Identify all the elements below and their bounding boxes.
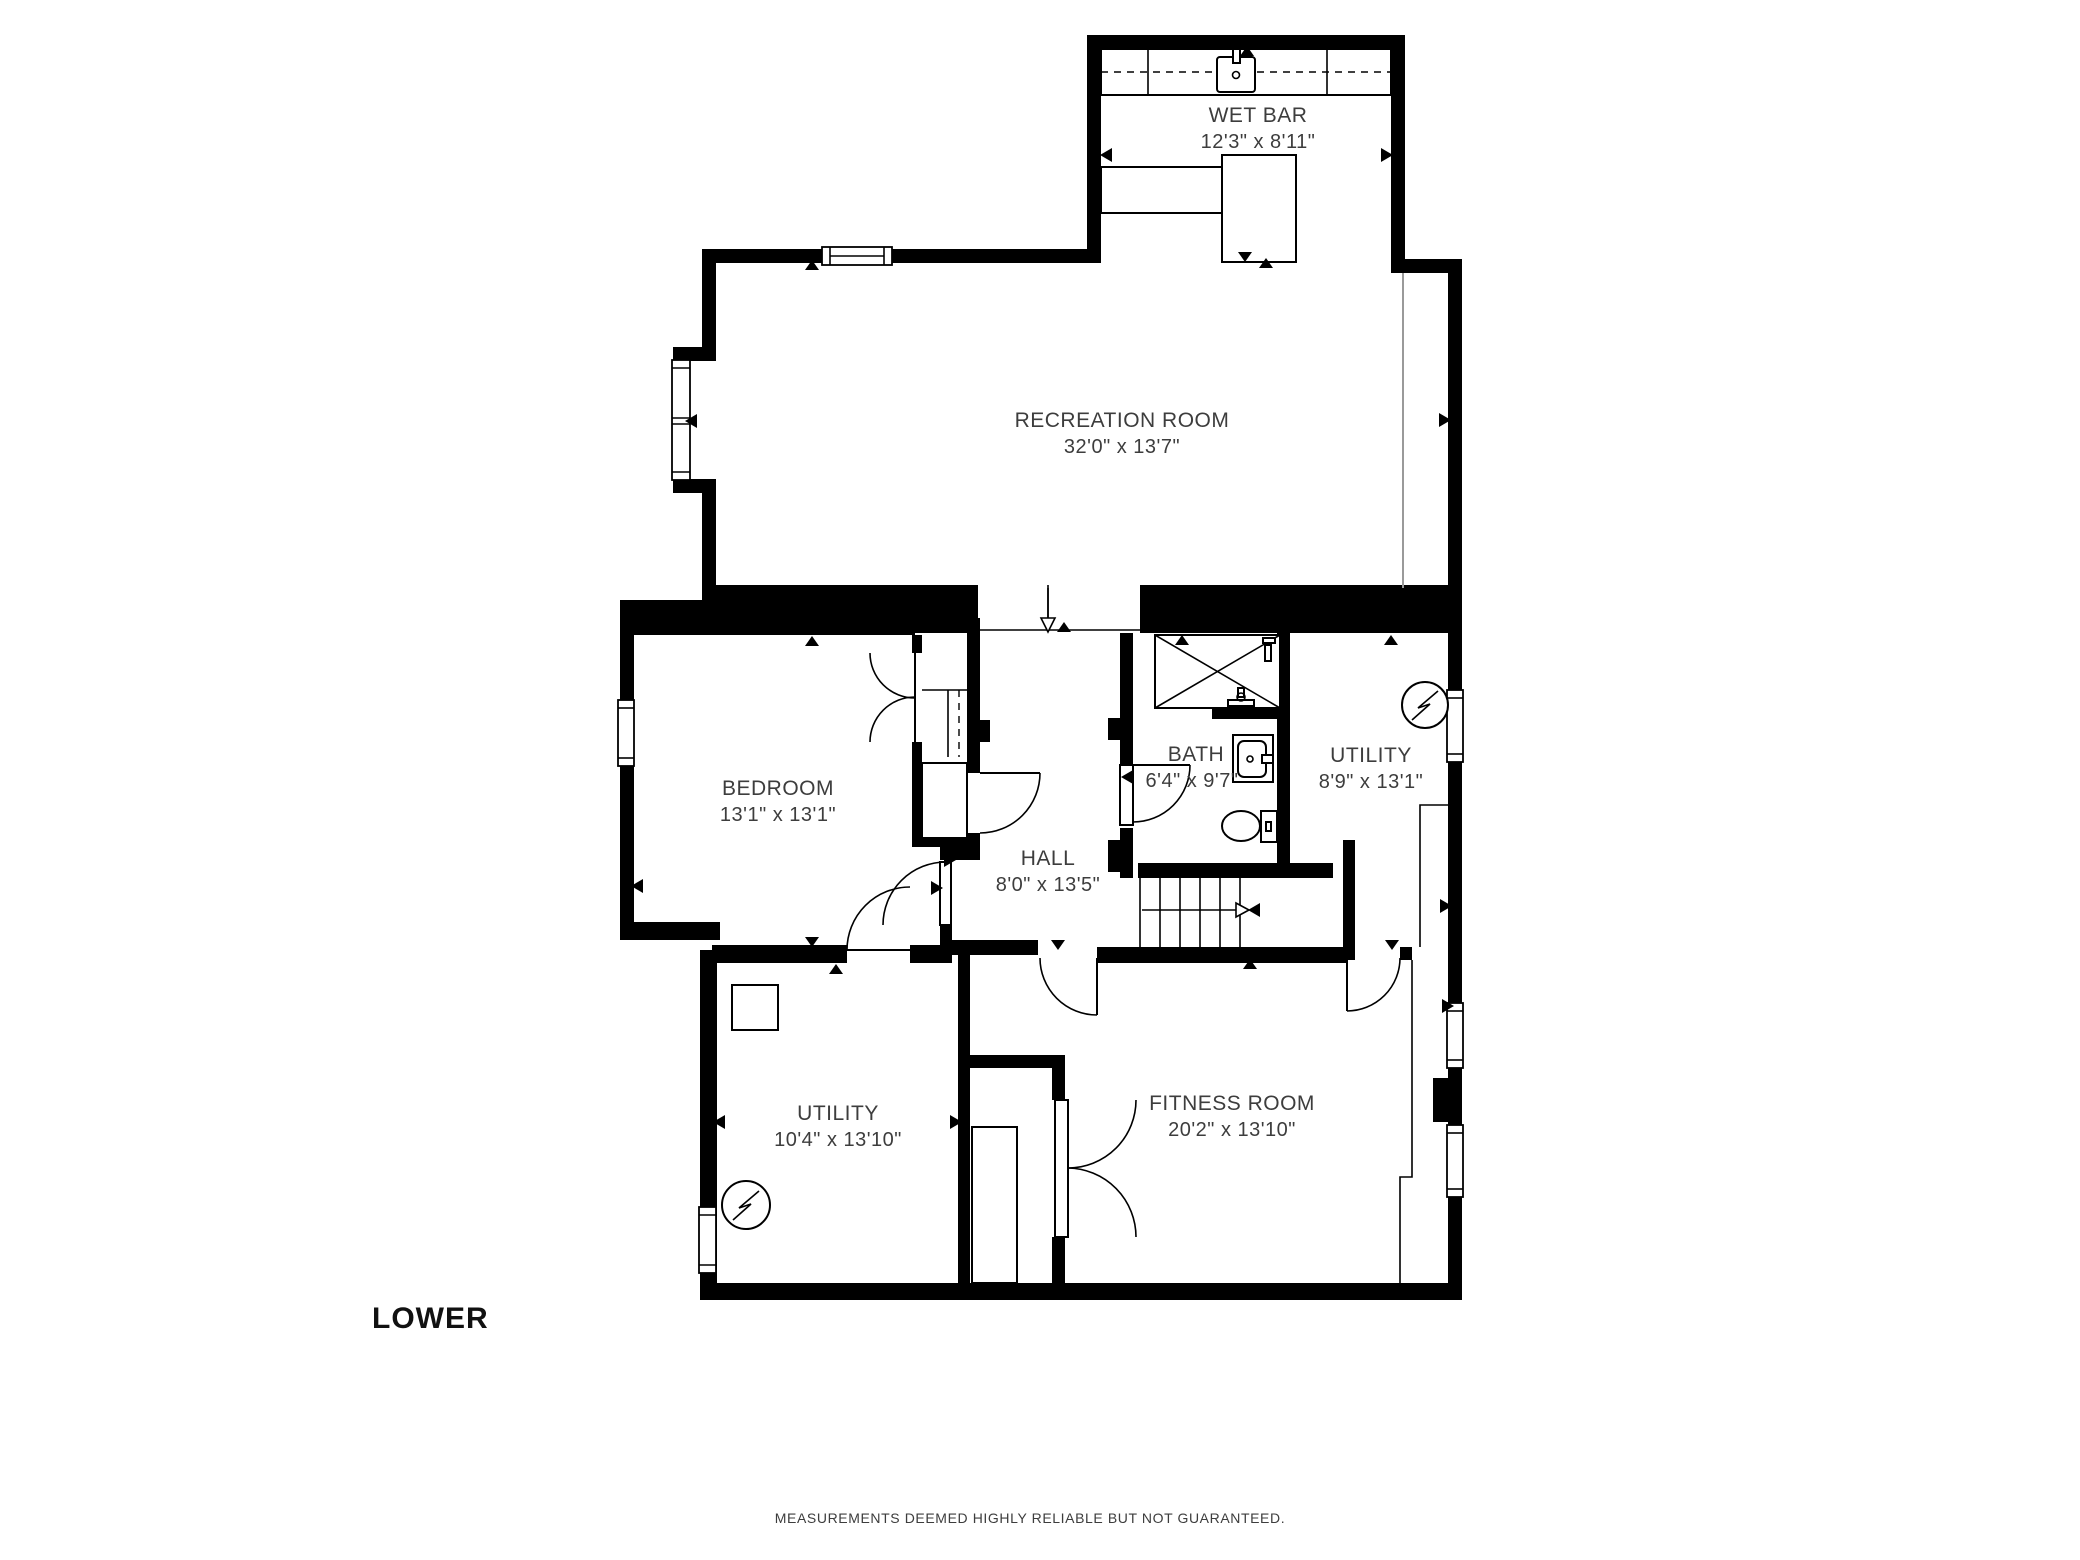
wall-segment: [702, 249, 1101, 263]
shower-icon: [1155, 635, 1280, 708]
wall-segment: [620, 600, 634, 940]
stairs-upper-landing: [978, 585, 1140, 632]
foundation-ledge-line: [1400, 960, 1412, 1283]
room-label-fitness-room: FITNESS ROOM: [1149, 1092, 1315, 1115]
wall-segment: [967, 757, 980, 773]
room-dims-hall: 8'0" x 13'5": [996, 874, 1101, 896]
electrical-panel: [732, 985, 778, 1030]
wall-segment: [1097, 947, 1347, 963]
bedroom-closet: [922, 690, 967, 757]
wall-segment: [1108, 718, 1122, 740]
disclaimer: MEASUREMENTS DEEMED HIGHLY RELIABLE BUT …: [775, 1510, 1285, 1526]
wall-segment: [912, 838, 967, 847]
wall-segment: [1448, 592, 1462, 692]
wall-segment: [1391, 35, 1405, 273]
wall-segment: [912, 635, 922, 653]
wall-segment: [958, 955, 970, 1283]
window: [699, 1207, 716, 1273]
wall-segment: [673, 347, 716, 361]
door-arc: [980, 773, 1040, 833]
door-arc: [1040, 958, 1097, 1015]
wall-segment: [1400, 947, 1412, 960]
stairs: [1140, 872, 1260, 947]
room-dims-wet-bar: 12'3" x 8'11": [1201, 131, 1316, 153]
room-label-utility-lower: UTILITY: [797, 1102, 879, 1125]
furnace: [972, 1127, 1017, 1283]
wall-segment: [1120, 633, 1133, 765]
door-arc: [883, 862, 951, 925]
wall-segment: [970, 1055, 1065, 1068]
wall-segment: [1108, 840, 1122, 872]
wall-segment: [700, 1283, 1462, 1300]
room-label-bath: BATH: [1168, 743, 1224, 766]
wall-segment: [620, 618, 915, 635]
wall-segment: [1448, 1068, 1462, 1127]
room-label-wet-bar: WET BAR: [1209, 104, 1308, 127]
electrical-symbol-icon: [722, 1181, 770, 1229]
electrical-symbol-icon: [1402, 682, 1448, 728]
wall-segment: [1138, 863, 1333, 878]
door-arc: [1055, 1100, 1136, 1237]
wall-segment: [1343, 840, 1355, 960]
room-dims-utility-right: 8'9" x 13'1": [1319, 771, 1424, 793]
room-label-utility-right: UTILITY: [1330, 744, 1412, 767]
wall-segment: [1448, 259, 1462, 592]
wall-segment: [940, 925, 952, 955]
room-dims-recreation-room: 32'0" x 13'7": [1064, 436, 1180, 458]
wall-segment: [912, 757, 922, 847]
window: [822, 247, 892, 265]
window: [1447, 1003, 1463, 1068]
floor-plan: WET BAR 12'3" x 8'11" RECREATION ROOM 32…: [0, 0, 2080, 1560]
window: [1447, 690, 1463, 762]
bathroom-sink-icon: [1233, 735, 1273, 782]
wall-segment: [952, 940, 1038, 955]
door-arc: [1347, 958, 1400, 1011]
wall-segment: [1087, 35, 1101, 263]
hall-closet: [922, 763, 967, 838]
room-label-hall: HALL: [1021, 847, 1076, 870]
walls: [620, 35, 1462, 1300]
wall-segment: [1087, 35, 1405, 49]
wall-segment: [1052, 1237, 1065, 1283]
door-arc: [870, 653, 915, 742]
window: [618, 700, 634, 766]
door-arc: [847, 887, 910, 950]
wet-bar-island-counter: [1101, 155, 1296, 262]
wall-segment: [673, 479, 716, 493]
room-dims-bath: 6'4" x 9'7": [1146, 770, 1239, 792]
measurement-markers: [631, 46, 1454, 1293]
wall-segment: [702, 249, 716, 347]
utility-corner-line: [1420, 805, 1448, 947]
window: [1447, 1125, 1463, 1197]
wall-segment: [912, 742, 922, 757]
room-dims-utility-lower: 10'4" x 13'10": [774, 1129, 902, 1151]
wall-segment: [702, 493, 716, 600]
room-dims-fitness-room: 20'2" x 13'10": [1168, 1119, 1296, 1141]
wall-segment: [1052, 1068, 1065, 1100]
wall-segment: [1448, 760, 1462, 1005]
toilet-icon: [1222, 811, 1277, 842]
room-label-bedroom: BEDROOM: [722, 777, 834, 800]
room-label-recreation-room: RECREATION ROOM: [1015, 409, 1230, 432]
wall-segment: [620, 922, 720, 940]
room-dims-bedroom: 13'1" x 13'1": [720, 804, 836, 826]
wall-segment: [978, 720, 990, 742]
wall-segment: [1140, 585, 1462, 633]
floor-title: LOWER: [372, 1302, 489, 1335]
